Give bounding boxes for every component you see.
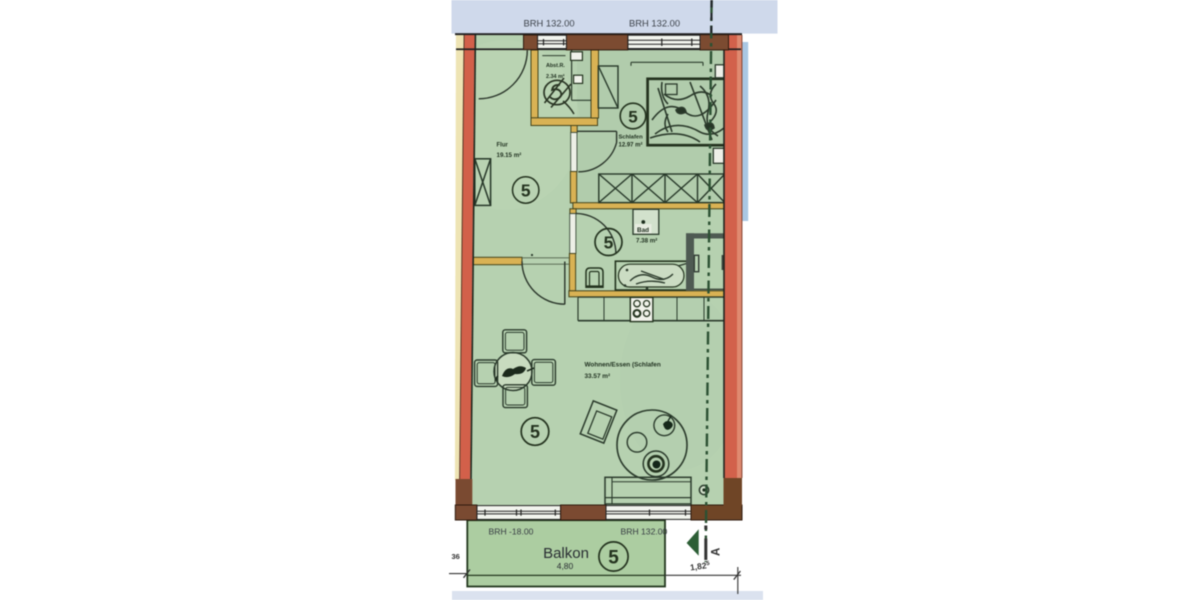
svg-text:Balkon: Balkon <box>543 545 589 562</box>
svg-text:1,825: 1,825 <box>689 560 711 573</box>
svg-text:5: 5 <box>608 547 619 568</box>
svg-text:A: A <box>711 548 723 556</box>
svg-text:Schlafen: Schlafen <box>619 135 644 141</box>
svg-text:33.57 m²: 33.57 m² <box>585 373 611 380</box>
svg-text:5: 5 <box>521 180 531 200</box>
svg-text:BRH 132.00: BRH 132.00 <box>629 18 680 29</box>
svg-text:Abst.R.: Abst.R. <box>546 63 565 69</box>
svg-text:Wohnen/Essen (Schlafen: Wohnen/Essen (Schlafen <box>585 362 661 369</box>
svg-text:BRH -18.00: BRH -18.00 <box>489 527 534 537</box>
svg-text:7.38 m²: 7.38 m² <box>636 238 657 245</box>
svg-text:12.97 m²: 12.97 m² <box>619 142 643 149</box>
svg-text:19.15 m²: 19.15 m² <box>497 152 522 159</box>
svg-text:BRH 132.00: BRH 132.00 <box>621 527 668 537</box>
svg-text:BRH 132.00: BRH 132.00 <box>524 18 575 29</box>
svg-text:5: 5 <box>604 233 614 253</box>
svg-text:4,80: 4,80 <box>557 561 574 571</box>
svg-text:5: 5 <box>530 422 540 442</box>
svg-text:36: 36 <box>452 552 460 561</box>
svg-text:Flur: Flur <box>497 143 509 149</box>
svg-text:5: 5 <box>628 107 637 126</box>
svg-text:Bad: Bad <box>637 227 649 234</box>
svg-text:2.34 m²: 2.34 m² <box>546 74 565 80</box>
